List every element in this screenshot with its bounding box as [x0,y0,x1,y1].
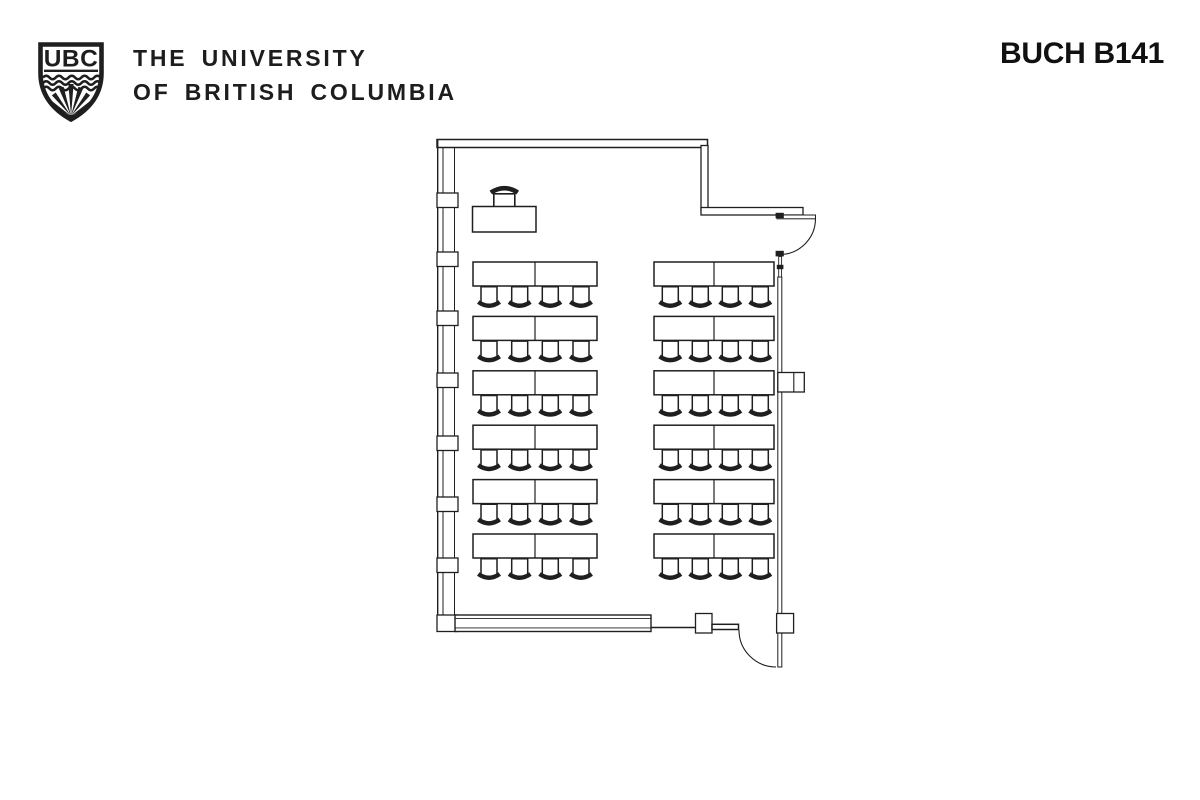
chair [573,559,589,574]
chair-back [750,574,771,578]
chair-back [509,411,530,415]
chair-back [570,520,591,524]
chair [512,504,528,519]
chair [512,341,528,356]
chair-back [690,574,711,578]
door-hinge-tick [776,213,784,218]
chair [481,504,497,519]
window-mullion [437,311,458,326]
chair [512,450,528,465]
chair-back [660,302,681,306]
desk-unit [654,480,774,524]
door-frame-post [696,614,713,634]
chair-back [570,574,591,578]
chair-back [570,411,591,415]
chair [722,504,738,519]
chair-back [660,520,681,524]
chair-back [750,356,771,360]
chair-back [720,574,741,578]
chair-back [509,356,530,360]
door-frame-post [777,614,794,634]
instructor-chair [494,194,515,207]
door-leaf [712,624,739,629]
chair [752,341,768,356]
chair [662,450,678,465]
chair [662,504,678,519]
window-mullion [437,373,458,388]
chair-back [720,356,741,360]
chair [752,287,768,302]
chair [542,450,558,465]
chair [752,559,768,574]
chair [692,341,708,356]
chair-back [509,465,530,469]
chair-back [540,411,561,415]
chair-back [509,574,530,578]
chair [481,450,497,465]
chair [722,450,738,465]
chair [692,559,708,574]
desk-unit [473,316,597,360]
chair-back [478,411,499,415]
chair [512,287,528,302]
chair [662,559,678,574]
chair-back [750,302,771,306]
door-swing-arc [739,630,776,667]
wall-right [778,277,782,667]
chair-back [750,411,771,415]
chair-back [478,465,499,469]
chair-back [660,465,681,469]
chair [481,341,497,356]
chair [662,341,678,356]
chair [662,396,678,411]
wall-bottom [455,615,651,632]
floor-plan [420,128,830,680]
chair [542,559,558,574]
wall-pilaster [778,373,805,393]
student-desks [473,262,774,578]
instructor-station [473,188,537,232]
chair [542,396,558,411]
door-top-right [776,213,816,277]
window-mullion [437,497,458,512]
chair-back [660,574,681,578]
chair-back [720,520,741,524]
desk-unit [473,534,597,578]
chair [722,287,738,302]
chair-back [750,520,771,524]
desk-unit [473,425,597,469]
chair-back [660,411,681,415]
chair-back [540,574,561,578]
chair-back [720,411,741,415]
chair-back [478,574,499,578]
wall-corner-block [437,615,457,632]
chair [542,504,558,519]
chair-back [570,356,591,360]
chair [752,396,768,411]
window-mullion [437,252,458,267]
chair [573,341,589,356]
ubc-logo: UBC [37,41,105,123]
desk-unit [654,534,774,578]
desk-unit [654,425,774,469]
instructor-desk [473,207,537,233]
desk-unit [473,262,597,306]
chair [573,450,589,465]
chair-back [540,465,561,469]
chair [662,287,678,302]
chair [722,559,738,574]
desk-unit [654,371,774,415]
chair [722,341,738,356]
desk-unit [473,480,597,524]
chair-back [570,465,591,469]
chair-back [570,302,591,306]
chair-back [690,411,711,415]
chair [512,396,528,411]
window-mullion [437,558,458,573]
chair-back [509,302,530,306]
chair-back [478,356,499,360]
wall-top [437,140,708,148]
desk-unit [654,316,774,360]
chair [573,504,589,519]
chair-back [660,356,681,360]
chair [481,287,497,302]
chair [692,504,708,519]
chair-back [690,302,711,306]
instructor-chair-back [491,188,518,192]
chair-back [720,465,741,469]
chair-back [540,520,561,524]
door-stop-tick [777,265,784,269]
chair-back [540,356,561,360]
chair [692,287,708,302]
chair [573,396,589,411]
chair [481,559,497,574]
chair-back [478,520,499,524]
chair [692,396,708,411]
chair-back [690,520,711,524]
desk-unit [473,371,597,415]
chair-back [478,302,499,306]
chair [512,559,528,574]
chair-back [540,302,561,306]
university-name-line1: THE UNIVERSITY [133,41,457,75]
chair-back [690,465,711,469]
door-swing-arc [780,219,816,255]
chair [752,504,768,519]
room-title: BUCH B141 [1000,37,1164,71]
desk-unit [654,262,774,306]
wall-alcove-horizontal [701,208,803,216]
chair-back [720,302,741,306]
chair [542,287,558,302]
university-name-line2: OF BRITISH COLUMBIA [133,75,457,109]
window-mullion [437,436,458,451]
chair [752,450,768,465]
chair-back [690,356,711,360]
window-mullion [437,193,458,208]
wall-alcove-vertical [701,146,708,211]
chair [542,341,558,356]
door-hinge-tick [776,251,784,257]
chair [692,450,708,465]
logo-acronym: UBC [44,46,99,73]
chair [722,396,738,411]
chair [481,396,497,411]
chair [573,287,589,302]
chair-back [509,520,530,524]
chair-back [750,465,771,469]
university-wordmark: THE UNIVERSITY OF BRITISH COLUMBIA [133,41,457,109]
